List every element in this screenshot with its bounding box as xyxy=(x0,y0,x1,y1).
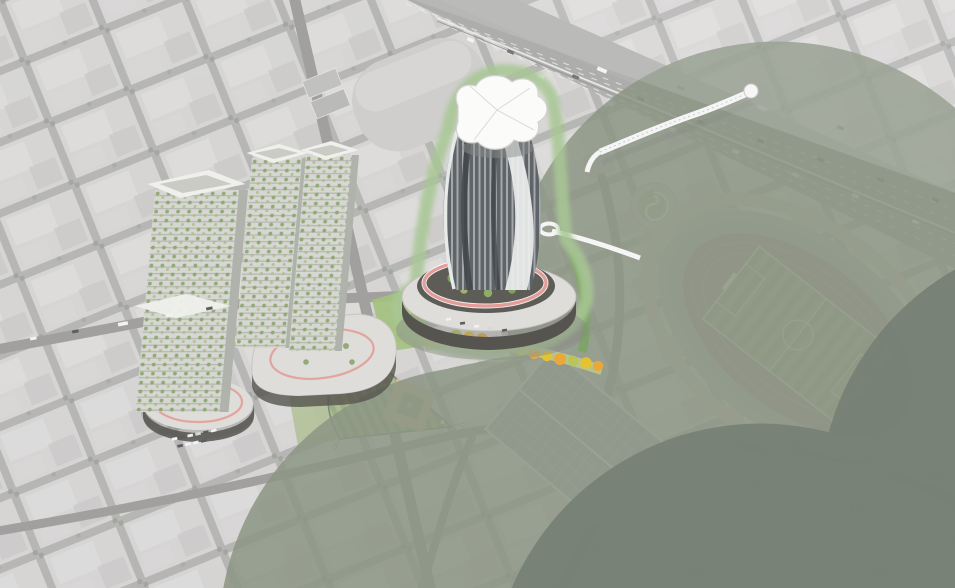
aerial-rendering-canvas xyxy=(0,0,955,588)
architectural-rendering xyxy=(0,0,955,588)
